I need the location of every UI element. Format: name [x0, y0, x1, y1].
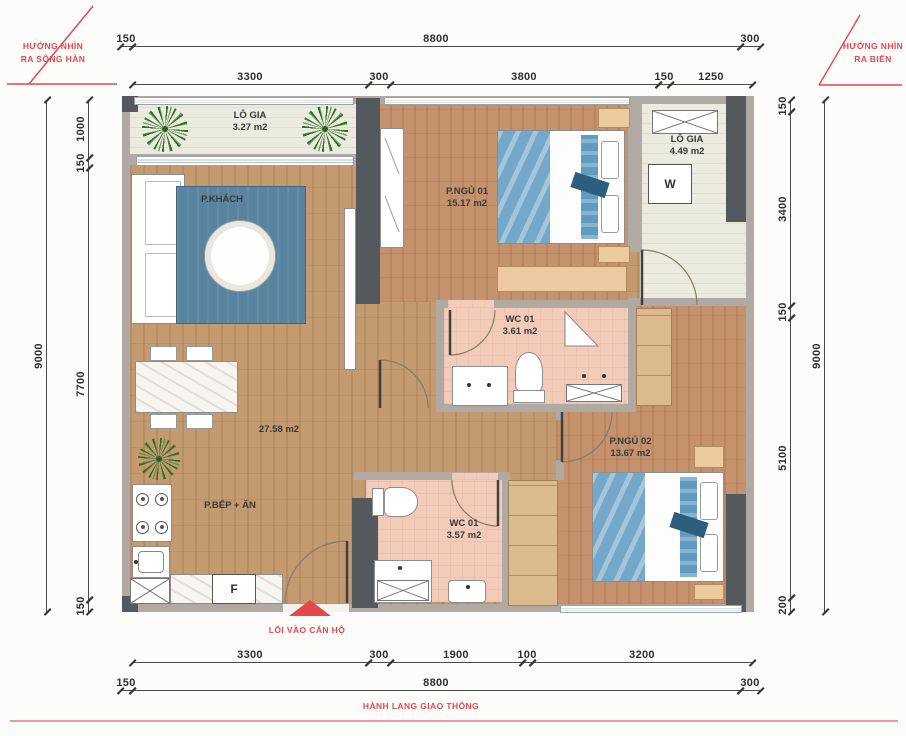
room-area: 3.61 m2 — [477, 326, 563, 338]
washer-label: W — [664, 177, 675, 191]
window-bedroom2 — [560, 605, 742, 613]
room-label-wc2: WC 01 3.57 m2 — [420, 518, 508, 543]
dim-top-300: 300 — [368, 84, 390, 85]
dim-left-7700: 7700 — [88, 168, 89, 600]
wall-balcony-bed2 — [628, 298, 748, 306]
column-top-right — [726, 96, 746, 222]
wc2-faucet — [398, 566, 402, 570]
room-label-kitchen: P.BẾP + ĂN — [180, 500, 280, 512]
stove-burner — [155, 521, 168, 534]
bench-bedroom1 — [497, 266, 627, 292]
dim-label: 3300 — [237, 649, 263, 661]
stove — [132, 484, 172, 542]
dim-label: 200 — [777, 595, 789, 614]
wall-wc1-right — [628, 300, 636, 412]
wc2-sink-faucet — [466, 585, 470, 589]
wc1-door-opening — [448, 300, 494, 308]
view-note-left-line2: RA SÔNG HÀN — [21, 54, 86, 64]
window-living-balcony — [136, 156, 354, 166]
dim-left-outer-9000: 9000 — [46, 100, 47, 612]
balcony-right-ac-unit — [652, 110, 718, 134]
nightstand-bed1-top — [598, 108, 630, 128]
dim-top-outer-300: 300 — [740, 46, 760, 47]
nightstand-bed1-bottom — [598, 246, 630, 263]
dim-label: 1900 — [443, 649, 469, 661]
dining-chair — [186, 414, 213, 429]
dim-bot-1900: 1900 — [390, 662, 522, 663]
dim-bot-3300: 3300 — [132, 662, 368, 663]
dim-bot-outer-300: 300 — [740, 690, 760, 691]
bed1-pillow — [601, 195, 619, 233]
dim-label: 300 — [740, 677, 759, 689]
sink-basin — [138, 551, 164, 573]
view-note-left-line1: HƯỚNG NHÌN — [23, 41, 83, 51]
room-name: WC 01 — [420, 518, 508, 530]
dim-label: 300 — [369, 71, 388, 83]
dim-label: 7700 — [75, 371, 87, 397]
floor-plan-canvas: HƯỚNG NHÌN RA SÔNG HÀN HƯỚNG NHÌN RA BIỂ… — [0, 0, 906, 736]
column-living-bed1 — [356, 98, 380, 304]
room-area: 3.27 m2 — [205, 122, 295, 134]
wc2-toilet-tank — [372, 488, 384, 516]
dim-right-3400: 3400 — [790, 112, 791, 306]
dim-label: 9000 — [811, 343, 823, 369]
window-balcony-left-rail — [134, 97, 354, 105]
wall-bed2-left-a — [556, 404, 564, 420]
view-note-right-line1: HƯỚNG NHÌN — [843, 41, 903, 51]
dining-chair — [150, 414, 177, 429]
plant-kitchen — [138, 438, 180, 480]
dim-label: 3300 — [237, 71, 263, 83]
view-note-right-line2: RA BIỂN — [854, 54, 891, 64]
dining-table — [135, 361, 238, 413]
view-note-left: HƯỚNG NHÌN RA SÔNG HÀN — [10, 40, 96, 66]
corridor-label-text: HÀNH LANG GIAO THÔNG — [363, 701, 479, 711]
plant-balcony-left-1 — [142, 106, 188, 152]
dim-right-5100: 5100 — [790, 318, 791, 598]
dim-label: 150 — [777, 96, 789, 115]
dim-label: 300 — [369, 649, 388, 661]
room-label-balcony-right: LÔ GIA 4.49 m2 — [645, 134, 729, 159]
coffee-table — [204, 220, 276, 292]
dim-label: 9000 — [33, 343, 45, 369]
kitchen-sink — [132, 546, 170, 578]
dim-label: 150 — [777, 302, 789, 321]
wardrobe-bedroom1 — [380, 128, 404, 248]
dim-label: 8800 — [423, 33, 449, 45]
room-label-bedroom2: P.NGỦ 02 13.67 m2 — [578, 436, 683, 461]
room-name: P.BẾP + ĂN — [180, 500, 280, 512]
room-name: P.KHÁCH — [172, 194, 272, 206]
dim-top-3300: 3300 — [132, 84, 368, 85]
wc1-towel-cabinet — [566, 384, 622, 402]
room-label-living: P.KHÁCH — [172, 194, 272, 206]
wall-outer-right — [746, 96, 754, 612]
dim-top-3800: 3800 — [390, 84, 658, 85]
dim-bot-300: 300 — [368, 662, 390, 663]
dim-left-1000: 1000 — [88, 100, 89, 158]
tv-console — [344, 208, 356, 370]
dim-label: 3200 — [629, 649, 655, 661]
wc2-towel-cabinet — [377, 580, 429, 601]
stove-burner — [136, 493, 149, 506]
room-label-balcony-left: LÔ GIA 3.27 m2 — [205, 110, 295, 135]
room-name: P.NGỦ 02 — [578, 436, 683, 448]
dim-left-150b: 150 — [88, 600, 89, 612]
room-label-bedroom1: P.NGỦ 01 15.17 m2 — [413, 186, 521, 211]
dim-right-200: 200 — [790, 598, 791, 612]
stove-burner — [136, 521, 149, 534]
room-name: LÔ GIA — [205, 110, 295, 122]
wall-outer-left — [122, 96, 130, 612]
wc2-door-opening — [452, 473, 498, 480]
stove-burner — [155, 493, 168, 506]
dim-label: 3400 — [777, 196, 789, 222]
cabinet-wc2-bed2 — [508, 480, 558, 606]
room-name: LÔ GIA — [645, 134, 729, 146]
dim-label: 1250 — [698, 71, 724, 83]
nightstand-bed2-top — [694, 446, 724, 468]
wall-wc1-left — [436, 300, 444, 412]
bed1-pillow — [601, 141, 619, 179]
room-area: 13.67 m2 — [578, 448, 683, 460]
entrance-arrow — [289, 600, 331, 616]
fridge-label: F — [230, 582, 237, 596]
wc1-vanity-faucet — [467, 383, 471, 387]
bed-bedroom2 — [592, 472, 724, 582]
kitchen-cabinet-x — [130, 578, 170, 604]
room-area: 27.58 m2 — [233, 424, 325, 436]
dim-right-outer-9000: 9000 — [824, 100, 825, 612]
wc1-toilet-tank — [513, 390, 545, 403]
dim-label: 5100 — [777, 445, 789, 471]
entrance-label: LỐI VÀO CĂN HỘ — [248, 624, 366, 637]
dim-top-1250: 1250 — [670, 84, 752, 85]
entrance-label-text: LỐI VÀO CĂN HỘ — [269, 625, 345, 635]
wall-bed2-left-b — [556, 460, 564, 480]
room-area: 4.49 m2 — [645, 146, 729, 158]
dim-label: 150 — [75, 596, 87, 615]
nightstand-bed2-bottom — [694, 584, 724, 600]
corridor-label: HÀNH LANG GIAO THÔNG — [356, 700, 486, 713]
dim-label: 300 — [740, 33, 759, 45]
room-area: 3.57 m2 — [420, 530, 508, 542]
room-area: 15.17 m2 — [413, 198, 521, 210]
wc2-toilet-bowl — [384, 487, 418, 517]
dim-label: 3800 — [511, 71, 537, 83]
room-label-wc1: WC 01 3.61 m2 — [477, 314, 563, 339]
dining-chair — [150, 346, 177, 361]
bed2-pillow — [700, 482, 718, 520]
dim-label: 150 — [654, 71, 673, 83]
wc1-counter-faucet — [602, 374, 606, 378]
bed2-pillow — [700, 534, 718, 572]
wc1-vanity — [452, 366, 508, 406]
plant-balcony-left-2 — [302, 106, 348, 152]
column-bottom-right — [726, 494, 746, 612]
dim-label: 150 — [116, 33, 135, 45]
wc1-vanity-faucet — [487, 383, 491, 387]
room-label-main-area: 27.58 m2 — [233, 424, 325, 436]
fridge: F — [212, 574, 256, 604]
dim-top-outer-8800: 8800 — [132, 46, 740, 47]
wall-bed1-balcony — [628, 96, 642, 252]
dim-label: 1000 — [75, 116, 87, 142]
wc1-counter-faucet — [582, 374, 586, 378]
view-note-right: HƯỚNG NHÌN RA BIỂN — [842, 40, 904, 66]
dim-label: 8800 — [423, 677, 449, 689]
room-name: WC 01 — [477, 314, 563, 326]
washing-machine: W — [648, 164, 692, 204]
dim-bot-outer-8800: 8800 — [132, 690, 740, 691]
corridor-line — [10, 720, 898, 722]
dim-label: 150 — [116, 677, 135, 689]
wc1-toilet-bowl — [515, 352, 543, 392]
wc2-sink — [448, 580, 486, 603]
window-bedroom1 — [384, 97, 630, 105]
bed2-blanket — [593, 473, 645, 581]
dim-bot-3200: 3200 — [532, 662, 752, 663]
faucet — [134, 560, 138, 564]
wardrobe-bedroom2 — [636, 308, 672, 406]
room-name: P.NGỦ 01 — [413, 186, 521, 198]
dining-chair — [186, 346, 213, 361]
